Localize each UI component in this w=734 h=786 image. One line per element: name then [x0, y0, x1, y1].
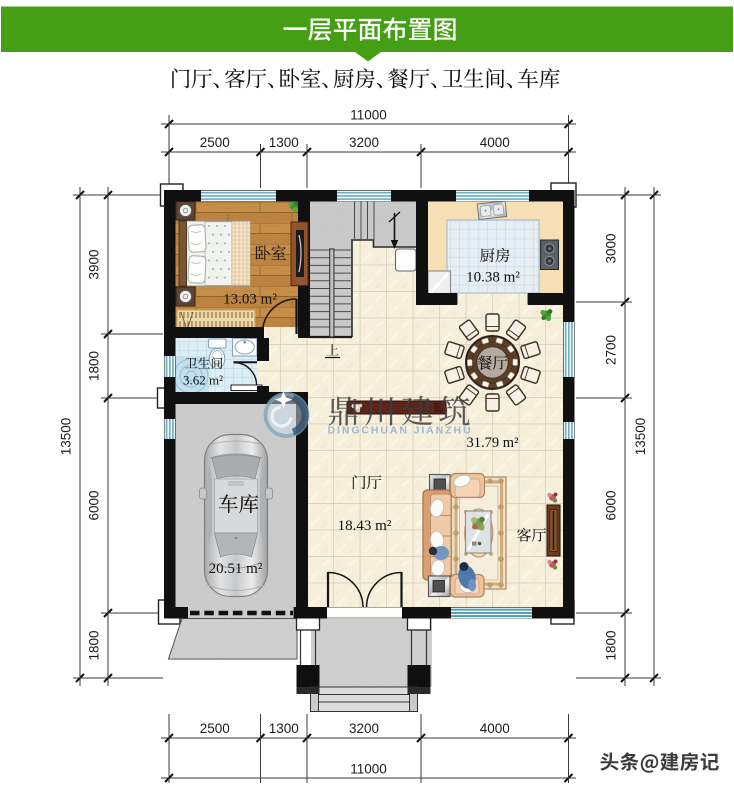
- svg-text:3200: 3200: [349, 135, 379, 150]
- svg-text:13.03 m²: 13.03 m²: [223, 292, 277, 308]
- svg-text:13500: 13500: [633, 418, 648, 456]
- svg-text:4000: 4000: [480, 721, 510, 736]
- svg-text:2700: 2700: [604, 335, 619, 365]
- svg-text:6000: 6000: [87, 490, 102, 520]
- svg-text:4000: 4000: [480, 135, 510, 150]
- svg-text:2500: 2500: [200, 135, 230, 150]
- svg-text:3.62 m²: 3.62 m²: [183, 373, 223, 388]
- svg-text:1800: 1800: [87, 630, 102, 660]
- svg-text:2500: 2500: [200, 721, 230, 736]
- svg-text:3900: 3900: [87, 249, 102, 279]
- svg-text:20.51 m²: 20.51 m²: [209, 561, 263, 577]
- svg-text:18.43 m²: 18.43 m²: [338, 518, 392, 534]
- svg-text:31.79 m²: 31.79 m²: [467, 435, 520, 451]
- svg-text:6000: 6000: [604, 490, 619, 520]
- svg-text:3200: 3200: [349, 721, 379, 736]
- svg-text:1800: 1800: [87, 351, 102, 381]
- svg-text:1300: 1300: [269, 721, 299, 736]
- svg-text:1300: 1300: [269, 135, 299, 150]
- svg-text:3000: 3000: [604, 233, 619, 263]
- svg-text:1800: 1800: [604, 630, 619, 660]
- svg-text:10.38 m²: 10.38 m²: [466, 270, 520, 286]
- svg-text:DINGCHUAN JIANZHU: DINGCHUAN JIANZHU: [328, 425, 473, 437]
- svg-text:11000: 11000: [350, 108, 387, 123]
- svg-text:13500: 13500: [59, 418, 74, 456]
- svg-text:11000: 11000: [350, 762, 387, 777]
